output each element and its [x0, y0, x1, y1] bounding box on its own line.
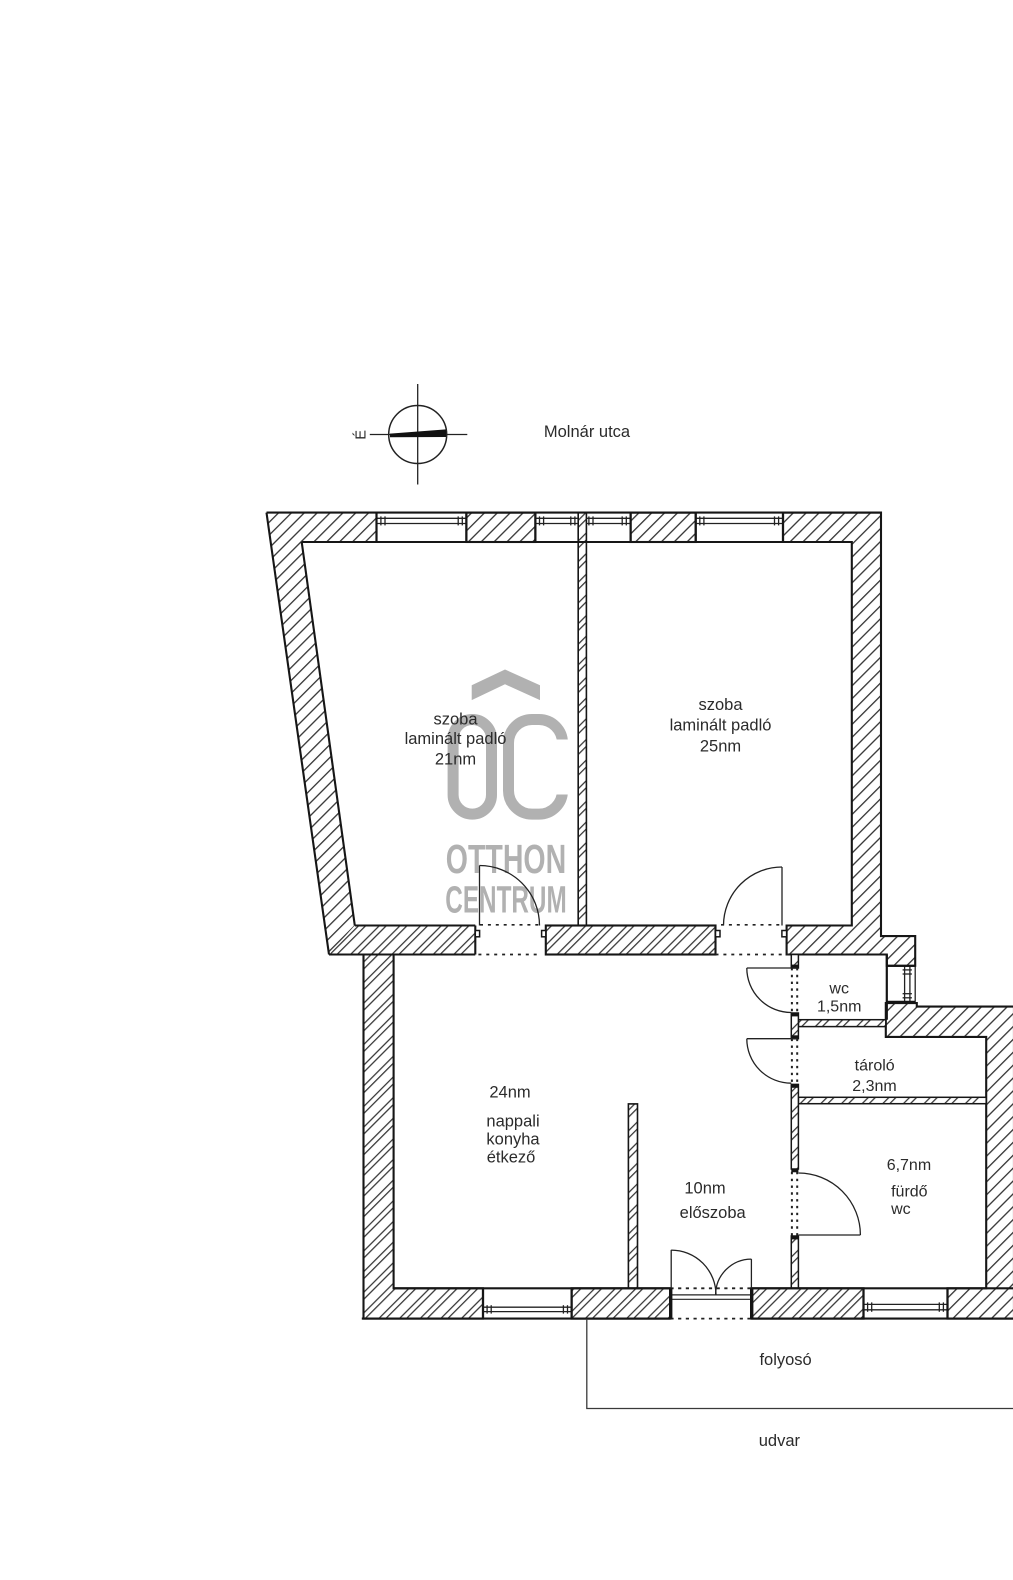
- svg-text:udvar: udvar: [759, 1432, 801, 1450]
- svg-text:folyosó: folyosó: [759, 1351, 811, 1369]
- svg-text:előszoba: előszoba: [680, 1204, 747, 1222]
- svg-text:étkező: étkező: [487, 1149, 536, 1167]
- svg-text:2,3nm: 2,3nm: [852, 1078, 896, 1095]
- svg-text:nappali: nappali: [486, 1112, 539, 1130]
- svg-text:laminált padló: laminált padló: [670, 716, 772, 734]
- svg-text:CENTRUM: CENTRUM: [445, 879, 566, 921]
- svg-text:1,5nm: 1,5nm: [817, 999, 861, 1016]
- svg-text:OTTHON: OTTHON: [446, 836, 566, 882]
- svg-text:21nm: 21nm: [435, 751, 476, 769]
- svg-text:szoba: szoba: [698, 696, 743, 714]
- svg-text:fürdő: fürdő: [891, 1184, 928, 1201]
- svg-text:25nm: 25nm: [700, 737, 741, 755]
- svg-text:szoba: szoba: [433, 710, 478, 728]
- svg-text:wc: wc: [890, 1201, 911, 1218]
- svg-text:Molnár utca: Molnár utca: [544, 423, 631, 441]
- svg-text:24nm: 24nm: [489, 1084, 530, 1102]
- svg-text:tároló: tároló: [855, 1058, 895, 1075]
- svg-text:É: É: [353, 430, 370, 440]
- svg-text:6,7nm: 6,7nm: [887, 1157, 931, 1174]
- svg-text:laminált padló: laminált padló: [405, 730, 507, 748]
- svg-text:konyha: konyha: [486, 1131, 540, 1149]
- svg-text:10nm: 10nm: [684, 1180, 725, 1198]
- svg-text:wc: wc: [828, 981, 849, 998]
